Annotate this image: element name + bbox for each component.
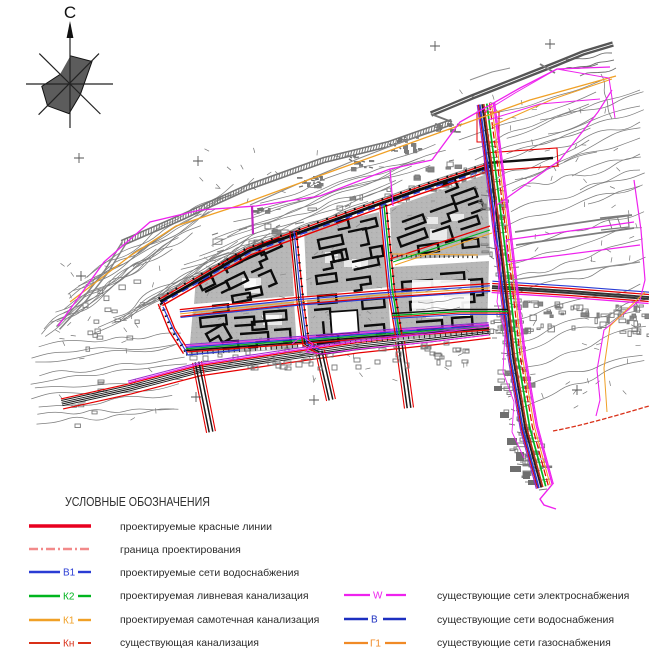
svg-text:С: С: [64, 3, 76, 22]
svg-text:УСЛОВНЫЕ ОБОЗНАЧЕНИЯ: УСЛОВНЫЕ ОБОЗНАЧЕНИЯ: [65, 495, 210, 509]
svg-text:существующая канализация: существующая канализация: [120, 637, 259, 649]
svg-text:проектируемые красные линии: проектируемые красные линии: [120, 521, 272, 533]
svg-text:существующие сети электроснабж: существующие сети электроснабжения: [437, 590, 629, 602]
svg-text:проектируемые сети водоснабжен: проектируемые сети водоснабжения: [120, 567, 299, 579]
svg-text:В: В: [371, 615, 378, 626]
svg-text:проектируемая самотечная канал: проектируемая самотечная канализация: [120, 614, 319, 626]
svg-text:существующие сети водоснабжени: существующие сети водоснабжения: [437, 614, 614, 626]
svg-text:существующие сети газоснабжени: существующие сети газоснабжения: [437, 637, 611, 649]
svg-text:Г1: Г1: [370, 639, 381, 650]
svg-text:К2: К2: [63, 592, 75, 603]
svg-text:граница проектирования: граница проектирования: [120, 544, 241, 556]
svg-text:W: W: [373, 591, 383, 602]
svg-text:Кн: Кн: [63, 639, 74, 650]
svg-text:проектируемая ливневая канализ: проектируемая ливневая канализация: [120, 590, 309, 602]
svg-text:К1: К1: [63, 616, 75, 627]
svg-text:В1: В1: [63, 568, 76, 579]
